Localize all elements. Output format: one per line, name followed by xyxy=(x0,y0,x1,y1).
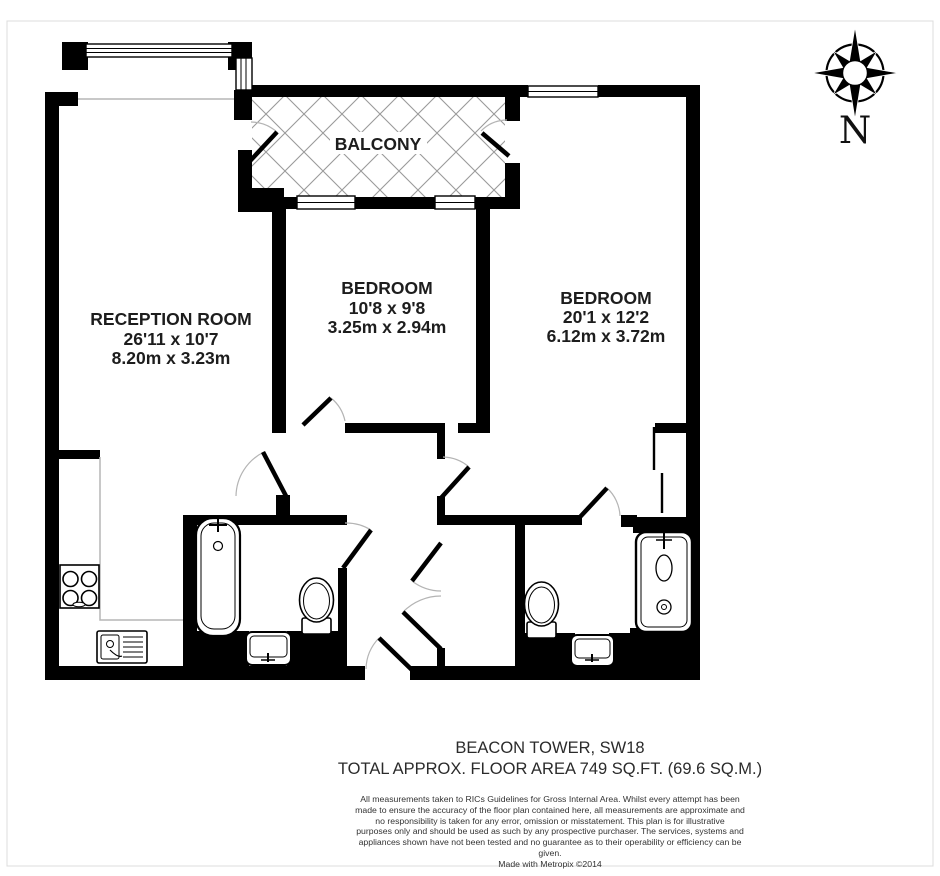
footer: BEACON TOWER, SW18 TOTAL APPROX. FLOOR A… xyxy=(255,738,845,870)
wall-segment xyxy=(238,92,252,120)
door-ensuite xyxy=(580,488,607,517)
balcony-label: BALCONY xyxy=(335,134,422,154)
window-bay xyxy=(86,44,232,57)
disclaimer: All measurements taken to RICs Guideline… xyxy=(255,794,845,870)
door-entrance xyxy=(379,638,412,670)
room-label-bedroom-middle: BEDROOM 10'8 x 9'8 3.25m x 2.94m xyxy=(328,278,447,337)
disclaimer-line: appliances shown have not been tested an… xyxy=(255,837,845,848)
reception-name: RECEPTION ROOM xyxy=(90,309,251,329)
wall-segment xyxy=(272,203,286,433)
door-cupboard-upper xyxy=(412,543,441,581)
wall-segment xyxy=(238,150,252,192)
wall-segment xyxy=(355,197,435,209)
bedroom-middle-name: BEDROOM xyxy=(341,278,432,298)
wall-segment xyxy=(476,203,490,433)
window-bedroom-right xyxy=(528,86,598,97)
total-area: TOTAL APPROX. FLOOR AREA 749 SQ.FT. (69.… xyxy=(255,759,845,780)
wall-segment xyxy=(437,648,445,666)
bedroom-middle-imperial: 10'8 x 9'8 xyxy=(349,298,426,318)
wall-segment xyxy=(598,85,700,97)
wall-segment xyxy=(62,42,88,70)
wardrobe-icon xyxy=(654,427,662,513)
reception-metric: 8.20m x 3.23m xyxy=(112,348,231,368)
wall-segment xyxy=(45,666,365,680)
wall-segment xyxy=(252,197,297,209)
wall-segment xyxy=(252,85,528,97)
basin-icon xyxy=(246,632,291,665)
reception-imperial: 26'11 x 10'7 xyxy=(124,329,219,349)
bedroom-right-metric: 6.12m x 3.72m xyxy=(547,326,666,346)
wall-segment xyxy=(633,517,700,533)
wall-segment xyxy=(458,423,490,433)
hob-icon xyxy=(60,565,99,608)
wall-segment xyxy=(45,92,59,680)
wall-segment xyxy=(655,423,700,433)
bedroom-right-imperial: 20'1 x 12'2 xyxy=(563,307,649,327)
wall-segment xyxy=(410,666,700,680)
door-bedroom-right xyxy=(441,467,469,498)
wall-segment xyxy=(45,92,78,106)
wall-segment xyxy=(437,433,445,459)
wall-segment xyxy=(515,525,525,637)
window-balcony-2 xyxy=(435,196,475,209)
wall-segment xyxy=(505,97,520,121)
toilet-icon xyxy=(525,582,559,638)
window-bay-side xyxy=(236,58,252,90)
wall-segment xyxy=(287,631,347,666)
wall-segment xyxy=(276,495,290,517)
window-balcony-1 xyxy=(297,196,355,209)
door-bathroom xyxy=(343,530,371,568)
door-cupboard-lower xyxy=(403,612,441,649)
room-label-balcony: BALCONY xyxy=(330,132,427,154)
shower-bath-icon xyxy=(636,532,692,632)
floorplan-page: BALCONY RECEPTION ROOM 26'11 x 10'7 8.20… xyxy=(0,0,940,876)
disclaimer-line: made to ensure the accuracy of the floor… xyxy=(255,805,845,816)
basin-icon xyxy=(571,635,614,666)
compass-rose-icon: N xyxy=(812,27,898,152)
kitchen-counter-line xyxy=(100,457,183,620)
building-title: BEACON TOWER, SW18 xyxy=(255,738,845,759)
door-reception-hall xyxy=(263,452,286,496)
room-label-bedroom-right: BEDROOM 20'1 x 12'2 6.12m x 3.72m xyxy=(547,288,666,346)
bathtub-icon xyxy=(196,518,240,636)
wall-segment xyxy=(630,628,700,666)
fixtures xyxy=(60,427,692,666)
disclaimer-line: given. xyxy=(255,848,845,859)
door-bedroom-middle xyxy=(303,398,331,425)
wall-segment xyxy=(505,163,520,209)
wall-segment xyxy=(57,450,100,459)
disclaimer-line: no responsibility is taken for any error… xyxy=(255,816,845,827)
kitchen-sink-icon xyxy=(97,631,147,663)
bedroom-middle-metric: 3.25m x 2.94m xyxy=(328,317,447,337)
toilet-icon xyxy=(300,578,334,634)
wall-segment xyxy=(437,515,582,525)
disclaimer-line: purposes only and should be used as such… xyxy=(255,826,845,837)
wall-segment xyxy=(345,423,445,433)
metropix-credit: Made with Metropix ©2014 xyxy=(255,859,845,870)
disclaimer-line: All measurements taken to RICs Guideline… xyxy=(255,794,845,805)
bedroom-right-name: BEDROOM xyxy=(560,288,651,308)
room-label-reception: RECEPTION ROOM 26'11 x 10'7 8.20m x 3.23… xyxy=(90,309,251,368)
compass-north-label: N xyxy=(839,109,871,152)
